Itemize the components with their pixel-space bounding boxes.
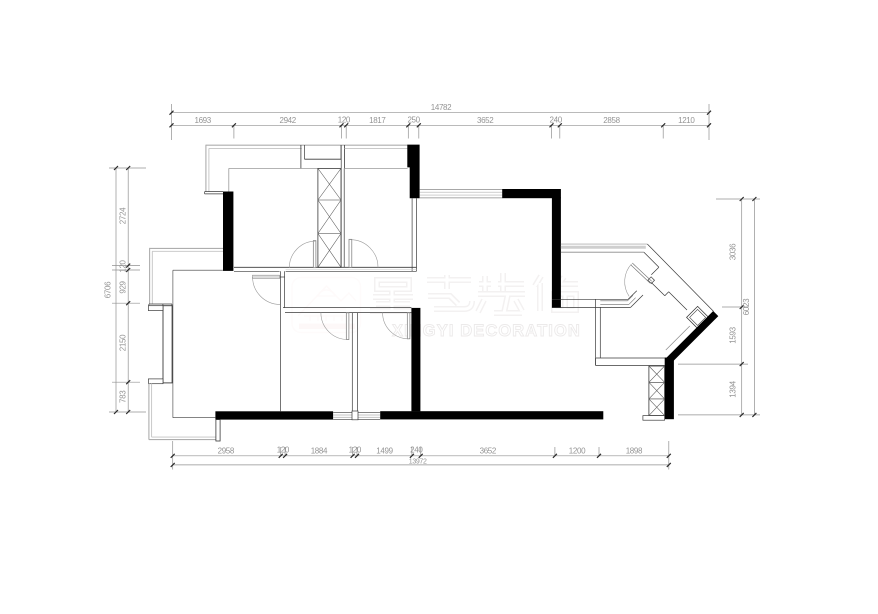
svg-text:1394: 1394 [728, 380, 737, 397]
svg-text:14782: 14782 [431, 103, 452, 112]
svg-text:2150: 2150 [118, 334, 127, 351]
svg-text:3652: 3652 [477, 116, 494, 125]
svg-text:240: 240 [550, 116, 563, 125]
svg-text:1200: 1200 [569, 446, 586, 455]
svg-text:1693: 1693 [194, 116, 211, 125]
svg-text:3036: 3036 [728, 243, 737, 260]
svg-text:1898: 1898 [626, 446, 643, 455]
svg-text:1817: 1817 [369, 116, 386, 125]
svg-text:13972: 13972 [409, 459, 427, 466]
svg-text:6023: 6023 [742, 298, 751, 315]
svg-text:2724: 2724 [118, 207, 127, 224]
svg-text:120: 120 [338, 116, 351, 125]
svg-text:1210: 1210 [678, 116, 695, 125]
svg-text:1593: 1593 [728, 326, 737, 343]
svg-text:120: 120 [277, 446, 290, 455]
svg-text:3652: 3652 [480, 446, 497, 455]
svg-text:2858: 2858 [603, 116, 620, 125]
svg-text:240: 240 [410, 446, 423, 455]
svg-text:120: 120 [118, 259, 127, 272]
svg-text:120: 120 [349, 446, 362, 455]
svg-text:2958: 2958 [218, 446, 235, 455]
svg-text:6706: 6706 [104, 281, 113, 298]
svg-text:2942: 2942 [279, 116, 296, 125]
svg-text:929: 929 [118, 280, 127, 293]
svg-text:783: 783 [118, 390, 127, 403]
svg-text:250: 250 [407, 116, 420, 125]
svg-text:1884: 1884 [311, 446, 328, 455]
svg-text:1499: 1499 [376, 446, 393, 455]
